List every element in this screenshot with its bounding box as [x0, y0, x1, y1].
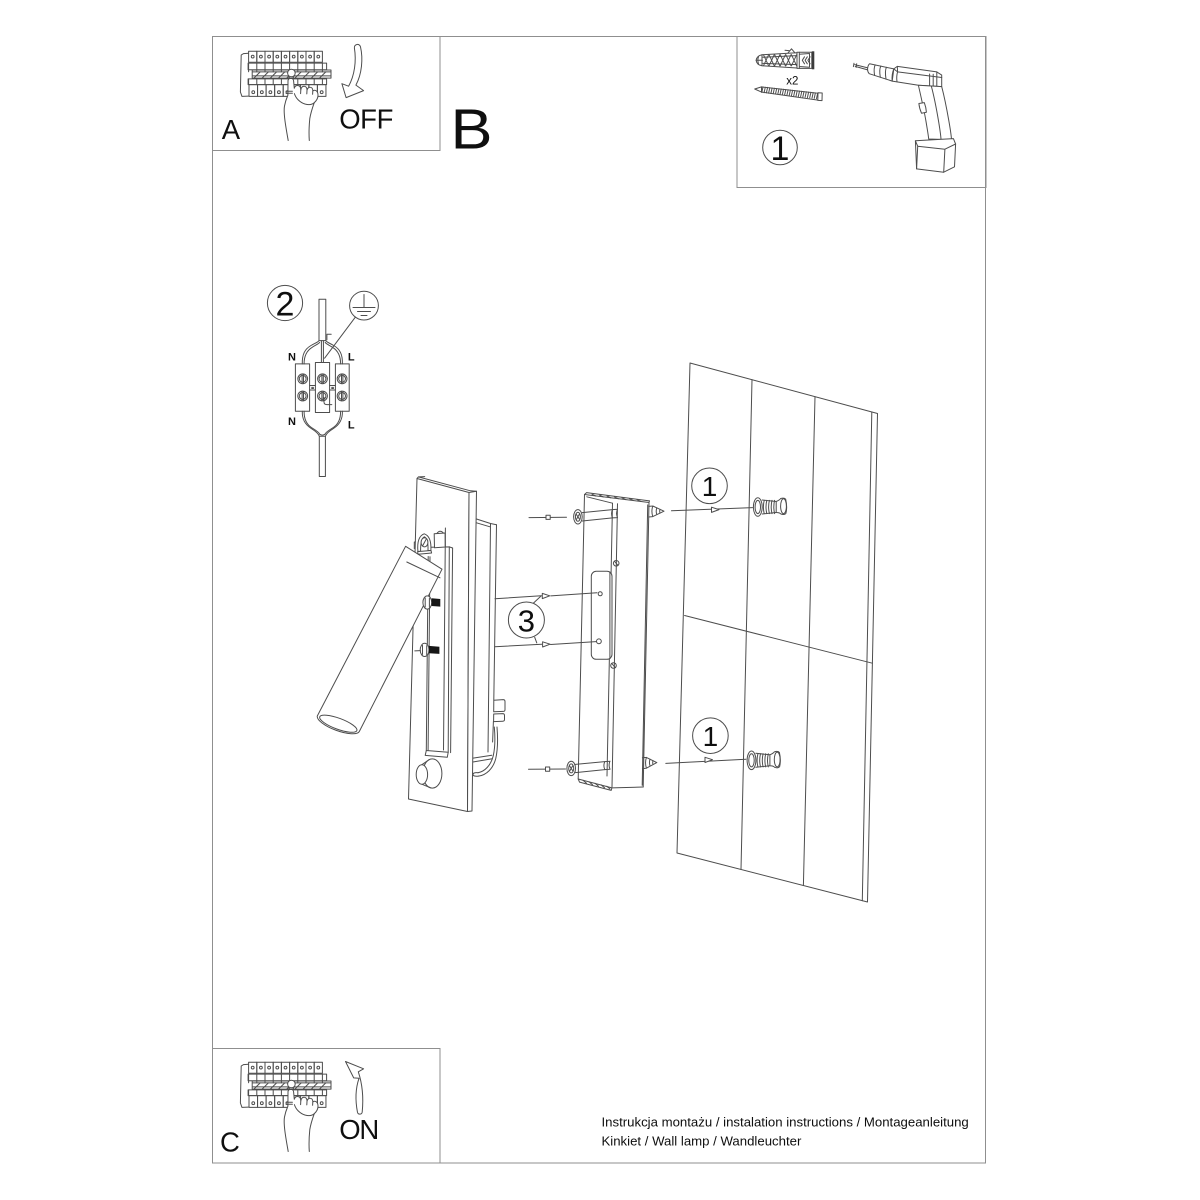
svg-text:Kinkiet / Wall lamp / Wandleuc: Kinkiet / Wall lamp / Wandleuchter: [602, 1134, 802, 1149]
svg-text:C: C: [220, 1126, 240, 1157]
svg-text:OFF: OFF: [339, 104, 393, 135]
svg-text:1: 1: [771, 130, 790, 168]
svg-text:L: L: [348, 352, 355, 364]
svg-text:1: 1: [703, 721, 719, 752]
svg-text:x2: x2: [786, 76, 798, 88]
svg-text:1: 1: [702, 471, 718, 502]
svg-text:A: A: [222, 114, 241, 145]
svg-text:N: N: [288, 352, 296, 364]
svg-text:ON: ON: [339, 1114, 378, 1145]
svg-text:Instrukcja montażu / instalati: Instrukcja montażu / instalation instruc…: [602, 1115, 969, 1130]
svg-text:3: 3: [518, 603, 535, 638]
svg-text:B: B: [451, 98, 493, 162]
svg-text:L: L: [348, 420, 355, 432]
svg-text:2: 2: [276, 285, 295, 323]
svg-text:N: N: [288, 416, 296, 428]
